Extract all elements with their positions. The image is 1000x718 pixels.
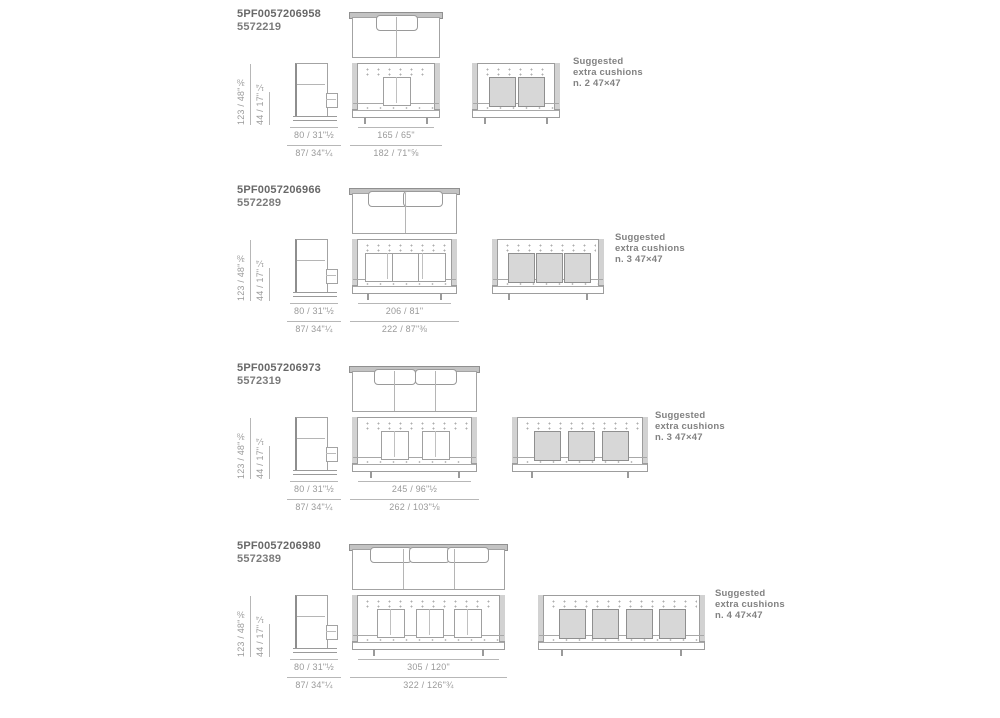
front-view-stitch-dots [360, 420, 469, 430]
cushion-view-stitch-dots [520, 420, 640, 430]
front-view-seat-line [353, 457, 476, 458]
front-view-back-cushion [422, 431, 450, 460]
dimension-depth-seat: 80 / 31"½ [287, 484, 341, 494]
side-view-armrest-line [326, 275, 336, 276]
dimension-line-seat-height [269, 268, 270, 301]
dimension-depth-total: 87/ 34"¼ [284, 148, 344, 158]
suggested-note-line3: n. 2 47×47 [573, 78, 643, 89]
dimension-line-width-seat [358, 303, 451, 304]
front-view-seat-band [358, 459, 471, 463]
dimension-depth-total: 87/ 34"¼ [284, 324, 344, 334]
product-row: 5PF0057206973 5572319 123 / 48"⅜ 44 / 17… [0, 362, 1000, 540]
top-view-seam [394, 371, 395, 411]
front-view-left-leg [373, 649, 375, 656]
suggested-note-line1: Suggested [715, 588, 785, 599]
dimension-line-depth-total [287, 499, 341, 500]
side-view-armrest [326, 447, 338, 462]
suggested-note-line3: n. 3 47×47 [615, 254, 685, 265]
front-view-stitch-dots [360, 66, 432, 76]
dimension-line-seat-height [269, 624, 270, 657]
dimension-width-total: 262 / 103"⅛ [346, 502, 483, 512]
dimension-line-height-total [250, 64, 251, 125]
extra-cushion [659, 609, 686, 639]
cushion-view-stitch-dots [480, 66, 552, 76]
front-view-drawing [352, 63, 440, 125]
dimension-line-depth-total [287, 145, 341, 146]
dimension-line-width-total [350, 677, 507, 678]
suggested-note-line3: n. 3 47×47 [655, 432, 725, 443]
front-view-seam [396, 77, 397, 103]
side-view-armrest-line [326, 631, 336, 632]
dimension-width-seat: 206 / 81" [350, 306, 459, 316]
extra-cushion [626, 609, 653, 639]
dimension-height-total: 123 / 48"⅜ [236, 239, 246, 301]
suggested-note-line2: extra cushions [573, 67, 643, 78]
extra-cushion [534, 431, 561, 461]
side-view-base [293, 470, 337, 475]
suggested-extra-cushions-note: Suggested extra cushions n. 4 47×47 [715, 588, 785, 621]
front-view-bottom-rail [353, 110, 439, 111]
dimension-seat-height: 44 / 17"¼ [255, 74, 265, 125]
dimension-line-height-total [250, 596, 251, 657]
suggested-note-line2: extra cushions [615, 243, 685, 254]
side-view-seam [297, 84, 325, 85]
extra-cushion [536, 253, 563, 283]
top-view-seam [405, 193, 406, 233]
suggested-extra-cushions-note: Suggested extra cushions n. 3 47×47 [615, 232, 685, 265]
product-codes: 5PF0057206980 5572389 [237, 540, 321, 566]
cushion-view-right-leg [586, 293, 588, 300]
top-view-back-pillow [370, 547, 412, 563]
extra-cushion [559, 609, 586, 639]
dimension-line-height-total [250, 240, 251, 301]
suggested-note-line1: Suggested [615, 232, 685, 243]
product-code-secondary: 5572319 [237, 375, 321, 388]
suggested-extra-cushions-note: Suggested extra cushions n. 2 47×47 [573, 56, 643, 89]
product-code-secondary: 5572389 [237, 553, 321, 566]
dimension-height-total: 123 / 48"⅜ [236, 417, 246, 479]
extra-cushion [602, 431, 629, 461]
dimension-width-total: 182 / 71"⅝ [346, 148, 446, 158]
dimension-line-depth-seat [290, 127, 338, 128]
front-view-right-leg [440, 293, 442, 300]
front-view-drawing [352, 417, 477, 479]
cushion-view-right-leg [546, 117, 548, 124]
side-view-drawing [293, 595, 341, 657]
dimension-depth-total: 87/ 34"¼ [284, 502, 344, 512]
side-view-armrest-line [326, 99, 336, 100]
dimension-line-seat-height [269, 92, 270, 125]
top-view-back-pillow [403, 191, 444, 207]
front-view-right-leg [482, 649, 484, 656]
side-view-body [295, 417, 328, 471]
top-view-seam [454, 549, 455, 589]
suggested-note-line1: Suggested [655, 410, 725, 421]
front-view-seam [422, 253, 423, 279]
dimension-line-width-seat [358, 481, 471, 482]
front-view-left-leg [370, 471, 372, 478]
top-view-seam [435, 371, 436, 411]
cushion-view-right-leg [627, 471, 629, 478]
suggested-note-line3: n. 4 47×47 [715, 610, 785, 621]
top-view-drawing [352, 366, 477, 412]
front-view-left-leg [367, 293, 369, 300]
product-code-secondary: 5572289 [237, 197, 321, 210]
front-view-seam [390, 609, 391, 635]
dimension-line-depth-seat [290, 481, 338, 482]
product-code-primary: 5PF0057206973 [237, 362, 321, 375]
product-codes: 5PF0057206973 5572319 [237, 362, 321, 388]
front-view-bottom-rail [353, 642, 504, 643]
dimension-line-width-total [350, 499, 479, 500]
dimension-line-width-total [350, 145, 442, 146]
side-view-seam [297, 616, 325, 617]
dimension-line-depth-seat [290, 659, 338, 660]
cushion-view-bottom-rail [473, 110, 559, 111]
cushion-view-stitch-dots [500, 242, 596, 252]
side-view-armrest [326, 269, 338, 284]
dimension-width-seat: 165 / 65" [350, 130, 442, 140]
suggested-note-line2: extra cushions [715, 599, 785, 610]
side-view-armrest-line [326, 453, 336, 454]
catalog-page: { "rows": [ { "code_primary": "5PF005720… [0, 0, 1000, 700]
product-codes: 5PF0057206966 5572289 [237, 184, 321, 210]
product-code-primary: 5PF0057206958 [237, 8, 321, 21]
product-code-primary: 5PF0057206980 [237, 540, 321, 553]
top-view-back-pillow [409, 547, 451, 563]
front-view-bottom-rail [353, 286, 456, 287]
dimension-width-total: 222 / 87"⅜ [346, 324, 463, 334]
top-view-drawing [352, 12, 440, 58]
top-view-back-pillow [376, 15, 418, 31]
side-view-drawing [293, 417, 341, 479]
product-row: 5PF0057206966 5572289 123 / 48"⅜ 44 / 17… [0, 184, 1000, 362]
dimension-width-seat: 245 / 96"½ [350, 484, 479, 494]
front-view-back-cushion [377, 609, 405, 638]
extra-cushion [508, 253, 535, 283]
side-view-base [293, 292, 337, 297]
dimension-width-seat: 305 / 120" [350, 662, 507, 672]
product-codes: 5PF0057206958 5572219 [237, 8, 321, 34]
dimension-seat-height: 44 / 17"¼ [255, 250, 265, 301]
extra-cushion-view-drawing [538, 595, 705, 657]
top-view-back-pillow [374, 369, 416, 385]
extra-cushion-view-drawing [512, 417, 648, 479]
extra-cushion [564, 253, 591, 283]
extra-cushion [518, 77, 545, 107]
side-view-body [295, 63, 328, 117]
front-view-stitch-dots [360, 242, 449, 252]
front-view-back-cushion [454, 609, 482, 638]
front-view-drawing [352, 239, 457, 301]
extra-cushion-view-drawing [472, 63, 560, 125]
side-view-base [293, 648, 337, 653]
dimension-width-total: 322 / 126"¾ [346, 680, 511, 690]
suggested-extra-cushions-note: Suggested extra cushions n. 3 47×47 [655, 410, 725, 443]
side-view-seam [297, 260, 325, 261]
dimension-line-depth-total [287, 677, 341, 678]
cushion-view-left-leg [484, 117, 486, 124]
cushion-view-bottom-rail [539, 642, 704, 643]
dimension-line-depth-total [287, 321, 341, 322]
top-view-drawing [352, 188, 457, 234]
extra-cushion [489, 77, 516, 107]
dimension-seat-height: 44 / 17"¼ [255, 606, 265, 657]
front-view-seam [394, 431, 395, 457]
dimension-seat-height: 44 / 17"¼ [255, 428, 265, 479]
product-code-primary: 5PF0057206966 [237, 184, 321, 197]
front-view-right-leg [458, 471, 460, 478]
product-code-secondary: 5572219 [237, 21, 321, 34]
top-view-back-pillow [415, 369, 457, 385]
extra-cushion-view-drawing [492, 239, 604, 301]
dimension-depth-seat: 80 / 31"½ [287, 662, 341, 672]
top-view-seam [403, 549, 404, 589]
front-view-drawing [352, 595, 505, 657]
product-row: 5PF0057206958 5572219 123 / 48"⅜ 44 / 17… [0, 8, 1000, 186]
cushion-view-left-leg [508, 293, 510, 300]
front-view-stitch-dots [360, 598, 497, 608]
dimension-depth-seat: 80 / 31"½ [287, 130, 341, 140]
cushion-view-left-leg [561, 649, 563, 656]
suggested-note-line2: extra cushions [655, 421, 725, 432]
cushion-view-left-leg [531, 471, 533, 478]
dimension-line-height-total [250, 418, 251, 479]
front-view-seam [429, 609, 430, 635]
product-row: 5PF0057206980 5572389 123 / 48"⅜ 44 / 17… [0, 540, 1000, 718]
dimension-line-depth-seat [290, 303, 338, 304]
dimension-depth-total: 87/ 34"¼ [284, 680, 344, 690]
front-view-seam [387, 253, 388, 279]
front-view-bottom-rail [353, 464, 476, 465]
top-view-seam [396, 17, 397, 57]
dimension-line-width-seat [358, 659, 499, 660]
dimension-line-seat-height [269, 446, 270, 479]
cushion-view-seat-line [473, 103, 559, 104]
dimension-height-total: 123 / 48"⅜ [236, 63, 246, 125]
extra-cushion [568, 431, 595, 461]
side-view-armrest [326, 93, 338, 108]
front-view-left-leg [364, 117, 366, 124]
cushion-view-right-leg [680, 649, 682, 656]
side-view-body [295, 595, 328, 649]
top-view-drawing [352, 544, 505, 590]
side-view-seam [297, 438, 325, 439]
cushion-view-bottom-rail [493, 286, 603, 287]
front-view-back-cushion [381, 431, 409, 460]
side-view-drawing [293, 63, 341, 125]
cushion-view-stitch-dots [546, 598, 697, 608]
dimension-line-width-seat [358, 127, 434, 128]
side-view-base [293, 116, 337, 121]
front-view-back-cushion [365, 253, 393, 282]
cushion-view-bottom-rail [513, 464, 647, 465]
dimension-height-total: 123 / 48"⅜ [236, 595, 246, 657]
front-view-seam [435, 431, 436, 457]
extra-cushion [592, 609, 619, 639]
front-view-back-cushion [392, 253, 420, 282]
front-view-back-cushion [416, 609, 444, 638]
side-view-body [295, 239, 328, 293]
dimension-line-width-total [350, 321, 459, 322]
front-view-right-leg [426, 117, 428, 124]
suggested-note-line1: Suggested [573, 56, 643, 67]
side-view-drawing [293, 239, 341, 301]
side-view-armrest [326, 625, 338, 640]
front-view-seam [467, 609, 468, 635]
front-view-back-cushion [383, 77, 411, 106]
dimension-depth-seat: 80 / 31"½ [287, 306, 341, 316]
